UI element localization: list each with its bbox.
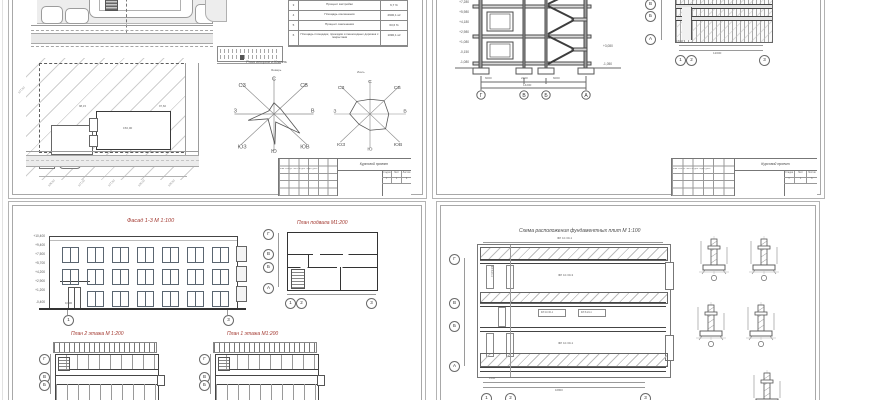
plan-dim-label: 12000 bbox=[713, 51, 721, 55]
stamp-project-cell: Курсовой проект bbox=[734, 159, 817, 171]
tep-cell: Площадь озеленения bbox=[299, 11, 381, 20]
plate-label-box: ФЛ 8.24-1 bbox=[486, 265, 494, 289]
foundation-title: Схема расположения фундаментных плит М 1… bbox=[519, 228, 640, 234]
bottom-dim-line bbox=[483, 382, 645, 383]
title-block: Изм. Кол.уч. Лист № док. Подп. Дата Курс… bbox=[278, 158, 411, 196]
axis-bubble: Б bbox=[39, 380, 50, 391]
facade-elevation-mark: +4,200 bbox=[21, 270, 45, 274]
facade-elevation-mark: +1,200 bbox=[21, 288, 45, 292]
facade-elevation-mark: -0,400 bbox=[21, 300, 45, 304]
balcony bbox=[236, 286, 247, 302]
plan-dim-label: 1500 bbox=[676, 39, 683, 43]
sheet-facade-plans: Фасад 1-3 М 1:100 +10,400 +9,400 +7,500 … bbox=[8, 201, 426, 400]
compass-label: С bbox=[368, 79, 372, 85]
tep-cell: 63,6 % bbox=[381, 21, 407, 30]
axis-dim-line bbox=[210, 354, 211, 394]
mini-entrance bbox=[240, 55, 244, 60]
facade-window bbox=[212, 247, 229, 263]
site-dim-line bbox=[39, 176, 187, 177]
plate-label: ФЛ 10.30-1 bbox=[558, 341, 573, 345]
plan-body bbox=[215, 354, 319, 400]
tep-cell: Процент застройки bbox=[299, 1, 381, 10]
slab-plan bbox=[675, 0, 773, 43]
axis-bubble: 2 bbox=[686, 55, 697, 66]
axis-bubble: Г bbox=[263, 229, 274, 240]
ramp-hatched bbox=[105, 0, 118, 11]
top-dim-label: ФЛ 10.30-1 bbox=[557, 236, 572, 240]
facade-window bbox=[62, 247, 79, 263]
axis-bubble: В bbox=[263, 249, 274, 260]
foundation-detail bbox=[746, 302, 776, 348]
compass-label: ЮЗ bbox=[337, 142, 345, 148]
partition bbox=[340, 267, 341, 290]
compass-label: С bbox=[272, 77, 276, 83]
wind-rose-title: Роза ветров г.Казань bbox=[246, 59, 287, 64]
axis-bubble: А bbox=[645, 34, 656, 45]
wall-axis-g bbox=[480, 259, 666, 264]
compass-label: ЮВ bbox=[394, 142, 403, 148]
facade-window bbox=[212, 269, 229, 285]
top-dim-line bbox=[483, 242, 663, 243]
tep-cell: 5 bbox=[289, 21, 299, 30]
axis-bubble: 3 bbox=[759, 55, 770, 66]
parapet-line bbox=[50, 240, 237, 241]
axis-bubble: 2 bbox=[296, 298, 307, 309]
elevation-mark: +3,080 bbox=[603, 44, 613, 48]
sheet-foundation: Схема расположения фундаментных плит М 1… bbox=[436, 201, 820, 400]
stamp-project-cell: Курсовой проект bbox=[337, 159, 411, 171]
compass-label: З bbox=[234, 109, 237, 115]
drawing-canvas: 1Площадь участка4557,0 м²2Площадь застро… bbox=[0, 0, 870, 400]
axis-bubble: Б bbox=[645, 11, 656, 22]
tep-row: 3Процент застройки6,7 % bbox=[289, 1, 407, 11]
facade-window bbox=[187, 247, 204, 263]
tep-cell: 6 bbox=[289, 31, 299, 45]
facade-window bbox=[162, 291, 179, 307]
road-edge bbox=[26, 151, 199, 152]
side-road bbox=[185, 63, 199, 163]
axis-bubble: 1 bbox=[675, 55, 686, 66]
axis-dim-line bbox=[661, 0, 662, 40]
tep-row: 4Площадь озеленения2900,1 м² bbox=[289, 11, 407, 21]
porch bbox=[89, 135, 98, 147]
entry-bump bbox=[317, 375, 325, 386]
compass-label: СЗ bbox=[338, 85, 345, 91]
tep-cell: 6,7 % bbox=[381, 1, 407, 10]
facade-window bbox=[212, 291, 229, 307]
facade-elevation-mark: +7,500 bbox=[21, 252, 45, 256]
foundation-detail bbox=[699, 236, 729, 282]
axis-bubble: Б bbox=[199, 380, 210, 391]
dim-label: 1500 bbox=[489, 376, 495, 380]
facade-elevation bbox=[49, 236, 238, 310]
facade-window bbox=[87, 247, 104, 263]
facade-window bbox=[187, 291, 204, 307]
dim-label: 6000 bbox=[553, 76, 560, 80]
axis-bubble: 1 bbox=[285, 298, 296, 309]
axis-bubble: 1 bbox=[481, 393, 492, 400]
elevation-mark: -1,050 bbox=[603, 62, 612, 66]
stage-value: У bbox=[382, 177, 392, 183]
plan-dim-line bbox=[287, 294, 376, 295]
dim-tick-strip bbox=[53, 342, 157, 353]
rooms-top bbox=[226, 355, 318, 370]
elevation-mark: +4,180 bbox=[447, 20, 469, 24]
rooms-bottom bbox=[56, 384, 158, 400]
facade-title: Фасад 1-3 М 1:100 bbox=[127, 218, 174, 224]
dim-tick-strip bbox=[213, 342, 317, 353]
facade-window bbox=[112, 247, 129, 263]
floor1-plan: Г В Б bbox=[201, 342, 327, 400]
plan-body bbox=[55, 354, 159, 400]
contour-label: 127,50 bbox=[17, 86, 26, 95]
leader-label-box: ФЛ 8.24-1 bbox=[578, 309, 606, 317]
plate-band bbox=[480, 353, 668, 367]
page-edge-line bbox=[2, 0, 3, 400]
traffic-island bbox=[65, 8, 89, 24]
elevation-mark: +7,280 bbox=[447, 0, 469, 4]
ground-line bbox=[39, 308, 246, 310]
mini-windows-row bbox=[220, 49, 280, 53]
compass-label: СВ bbox=[300, 83, 308, 89]
facade-elevation-mark: +9,400 bbox=[21, 243, 45, 247]
plate-label-box bbox=[498, 307, 506, 327]
sheet-siteplan: 1Площадь участка4557,0 м²2Площадь застро… bbox=[8, 0, 427, 199]
stair-bay bbox=[682, 7, 692, 40]
axis-bubble: 3 bbox=[223, 315, 234, 326]
tep-cell: 3 bbox=[289, 1, 299, 10]
axis-bubble: Б bbox=[449, 321, 460, 332]
compass-label: З bbox=[333, 109, 336, 115]
entry-elevation-mark: 0,000 bbox=[65, 301, 72, 305]
rooms-bottom bbox=[216, 384, 318, 400]
building-section: Г В Б А bbox=[439, 0, 639, 100]
facade-window bbox=[137, 247, 154, 263]
compass-label: ЮЗ bbox=[238, 145, 247, 151]
tep-cell: 2900,1 м² bbox=[381, 11, 407, 20]
foundation-detail bbox=[752, 370, 782, 400]
elevation-mark: +1,080 bbox=[447, 40, 469, 44]
traffic-island bbox=[41, 6, 63, 24]
rose-left-label: Январь bbox=[271, 68, 281, 72]
facade-elevation-mark: +2,900 bbox=[21, 279, 45, 283]
foundation-detail bbox=[696, 302, 726, 348]
leader-label-box: ФЛ 10.30-1 bbox=[538, 309, 566, 317]
axis-bubble: Г bbox=[199, 354, 210, 365]
floor2-title: План 2 этажа М 1:200 bbox=[71, 331, 124, 337]
sheet-section: Г В Б А +8,380 +7,280 +5,980 +4,180 +2,9… bbox=[432, 0, 825, 199]
partition bbox=[308, 254, 309, 268]
stamp-stage-values: У 1 6 bbox=[784, 177, 817, 184]
porch bbox=[89, 118, 98, 132]
axis-bubble: В bbox=[449, 298, 460, 309]
foundation-plan: ФЛ 8.24-1 ФЛ 10.30-3 ФЛ 10.30-1 ФЛ 8.24-… bbox=[477, 244, 671, 378]
compass-label: СЗ bbox=[239, 83, 246, 89]
elevation-mark: +2,980 bbox=[447, 30, 469, 34]
plate-label: ФЛ 8.24-1 bbox=[490, 266, 493, 277]
axis2-line bbox=[510, 245, 511, 377]
tep-table: 1Площадь участка4557,0 м²2Площадь застро… bbox=[288, 0, 408, 47]
axis-dim-line bbox=[50, 354, 51, 394]
compass-label: Ю bbox=[367, 146, 372, 151]
compass-label: В bbox=[403, 109, 407, 115]
facade-window bbox=[112, 291, 129, 307]
sheet-value: 1 bbox=[795, 177, 806, 183]
axis-bubble: Г bbox=[449, 254, 460, 265]
facade-window bbox=[62, 269, 79, 285]
axis-bubble: А bbox=[263, 283, 274, 294]
axis-bubble: А bbox=[449, 361, 460, 372]
tep-cell: 4 bbox=[289, 11, 299, 20]
stamp-left-grid bbox=[279, 159, 338, 196]
rose-right-label: Июль bbox=[357, 70, 365, 74]
corner-elevation-mark: 97,60 bbox=[159, 104, 166, 108]
balcony bbox=[236, 266, 247, 282]
axis-bubble: 1 bbox=[63, 315, 74, 326]
stamp-left-grid bbox=[672, 159, 735, 196]
facade-elevation-mark: +10,400 bbox=[21, 234, 45, 238]
axis-bubble: 3 bbox=[640, 393, 651, 400]
facade-elevation-mark: +5,700 bbox=[21, 261, 45, 265]
stage-value: У bbox=[784, 177, 795, 183]
road-edge bbox=[31, 25, 213, 26]
road-marking bbox=[31, 30, 213, 31]
dim-label: 2200 bbox=[521, 76, 528, 80]
wall-axis-b bbox=[480, 327, 666, 332]
facade-window bbox=[87, 269, 104, 285]
facade-window bbox=[162, 247, 179, 263]
inner-wall bbox=[288, 254, 377, 255]
facade-window bbox=[112, 269, 129, 285]
stamp-columns-label: Изм. Кол.уч. Лист № док. Подп. Дата bbox=[673, 168, 733, 170]
facade-window bbox=[187, 269, 204, 285]
title-block: Изм. Кол.уч. Лист № док. Подп. Дата Курс… bbox=[671, 158, 817, 196]
compass-label: ЮВ bbox=[300, 145, 310, 151]
foundation-detail bbox=[749, 236, 779, 282]
dim-total-label: 14200 bbox=[523, 83, 531, 87]
roadway-band bbox=[31, 33, 213, 44]
axis-bubble: 2 bbox=[505, 393, 516, 400]
compass-label: Ю bbox=[271, 149, 277, 154]
floor2-plan: Г В Б bbox=[41, 342, 167, 400]
wall-axis-a bbox=[480, 367, 666, 372]
axis-dim-line bbox=[278, 233, 279, 287]
plate-label: ФЛ 10.30-3 bbox=[558, 273, 573, 277]
wall-axis-v bbox=[480, 302, 666, 307]
main-building-footprint: 150,00 bbox=[96, 111, 171, 150]
curb-corner bbox=[205, 0, 227, 22]
sheet-value: 1 bbox=[392, 177, 402, 183]
axis-dim-line bbox=[464, 258, 465, 366]
compass-label: СВ bbox=[394, 85, 402, 91]
corner-elevation-mark: 98,15 bbox=[79, 104, 86, 108]
bottom-dim-line bbox=[483, 387, 645, 388]
street-centerline bbox=[26, 160, 199, 161]
stairwell bbox=[218, 357, 230, 371]
stairwell bbox=[58, 357, 70, 371]
facade-window bbox=[162, 269, 179, 285]
axis-label: Г bbox=[480, 93, 483, 99]
stamp-docname-cell bbox=[337, 171, 383, 196]
entry-bump bbox=[157, 375, 165, 386]
tep-cell: Процент озеленения bbox=[299, 21, 381, 30]
tep-cell: 1090,1 м² bbox=[381, 31, 407, 45]
balcony bbox=[236, 246, 247, 262]
wind-rose-july: С СВ В ЮВ Ю ЮЗ З СЗ bbox=[331, 77, 409, 151]
building-elevation-label: 150,00 bbox=[123, 126, 132, 130]
axis-bubble: 3 bbox=[366, 298, 377, 309]
tep-cell: Площадь площадок, проездов и пешеходных … bbox=[299, 31, 381, 45]
facade-window bbox=[137, 269, 154, 285]
sheets-value: 6 bbox=[807, 177, 817, 183]
plate-label: ФЛ 10.30-1 bbox=[541, 311, 553, 314]
elevation-mark: +5,980 bbox=[447, 10, 469, 14]
plan-dim-line bbox=[679, 45, 763, 46]
wind-rose-january: С СВ В ЮВ Ю ЮЗ З СЗ bbox=[231, 74, 317, 154]
entrance-door bbox=[68, 287, 81, 310]
balcony-stack bbox=[236, 246, 245, 302]
compass-label: В bbox=[311, 109, 315, 115]
street-band bbox=[26, 155, 199, 167]
plate-label: ФЛ 8.24-1 bbox=[581, 311, 592, 314]
elevation-mark: -0,150 bbox=[447, 50, 469, 54]
dim-label: 6000 bbox=[485, 76, 492, 80]
basement-plan bbox=[287, 232, 378, 291]
axis-bubble: В bbox=[645, 0, 656, 10]
tep-row: 5Процент озеленения63,6 % bbox=[289, 21, 407, 31]
facade-window bbox=[137, 291, 154, 307]
edge-plate bbox=[665, 262, 674, 290]
sheets-value: 6 bbox=[402, 177, 411, 183]
axis-bubble: Б bbox=[263, 262, 274, 273]
stamp-docname-cell bbox=[734, 171, 785, 196]
road-marking bbox=[31, 46, 213, 47]
stamp-stage-values: У 1 6 bbox=[382, 177, 411, 184]
stamp-columns-label: Изм. Кол.уч. Лист № док. Подп. Дата bbox=[280, 168, 336, 170]
elevation-mark: -1,080 bbox=[447, 60, 469, 64]
axis-bubble: Г bbox=[39, 354, 50, 365]
facade-window bbox=[87, 291, 104, 307]
dim-total-label: 16800 bbox=[555, 388, 563, 392]
rooms-top bbox=[66, 355, 158, 370]
basement-stair bbox=[291, 269, 305, 289]
basement-title: План подвала М1:200 bbox=[297, 220, 348, 226]
floor1-title: План 1 этажа М1:200 bbox=[227, 331, 278, 337]
tep-row: 6Площадь площадок, проездов и пешеходных… bbox=[289, 31, 407, 46]
